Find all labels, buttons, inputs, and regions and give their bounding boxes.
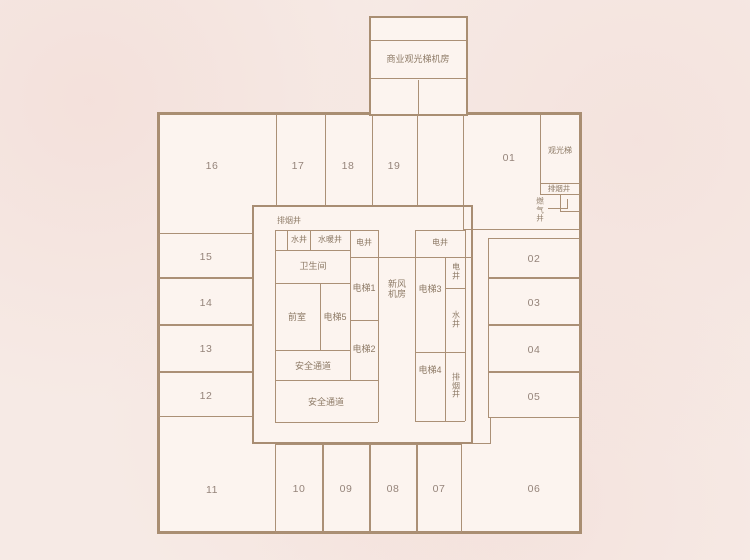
water-shaft-vertical-label: 水井 bbox=[451, 312, 461, 329]
room-09-label: 09 bbox=[340, 483, 353, 495]
floor-plan: 商业观光梯机房 观光梯 排烟井 燃气井 bbox=[0, 0, 750, 560]
wall-segment bbox=[371, 40, 466, 41]
wall-segment bbox=[490, 418, 491, 444]
room-13-label: 13 bbox=[200, 343, 213, 355]
room-06-label: 06 bbox=[528, 483, 541, 495]
electric-shaft-right-top-label: 电井 bbox=[432, 238, 448, 248]
machine-room-label: 商业观光梯机房 bbox=[386, 54, 449, 64]
room-17-label: 17 bbox=[292, 160, 305, 172]
smoke-exhaust-shaft-label: 排烟井 bbox=[548, 184, 571, 194]
safety-passage-upper-label: 安全通道 bbox=[295, 361, 331, 371]
room-16-label: 16 bbox=[206, 160, 219, 172]
wall-segment bbox=[325, 114, 326, 206]
room-04-label: 04 bbox=[528, 344, 541, 356]
room-03-label: 03 bbox=[528, 297, 541, 309]
elevator-3-label: 电梯3 bbox=[418, 284, 441, 294]
elevator-4-label: 电梯4 bbox=[418, 365, 441, 375]
wall-segment bbox=[465, 230, 466, 421]
wall-segment bbox=[320, 283, 321, 350]
wall-segment bbox=[350, 257, 472, 258]
wall-segment bbox=[418, 80, 419, 114]
room-02-label: 02 bbox=[528, 253, 541, 265]
wall-segment bbox=[276, 114, 277, 206]
room-18-label: 18 bbox=[342, 160, 355, 172]
room-01-label: 01 bbox=[503, 152, 516, 164]
wall-segment bbox=[378, 230, 379, 422]
front-room-label: 前室 bbox=[288, 312, 306, 322]
wall-segment bbox=[445, 288, 465, 289]
room-12-label: 12 bbox=[200, 390, 213, 402]
wall-segment bbox=[463, 229, 581, 230]
gas-shaft-leader-line bbox=[548, 208, 568, 209]
wall-segment bbox=[350, 320, 378, 321]
wall-segment bbox=[560, 211, 581, 212]
wall-segment bbox=[415, 421, 465, 422]
electric-shaft-vertical-label: 电井 bbox=[451, 264, 461, 281]
room-10-label: 10 bbox=[293, 483, 306, 495]
wall-segment bbox=[287, 230, 288, 250]
wall-segment bbox=[415, 352, 465, 353]
wall-segment bbox=[372, 114, 373, 206]
wall-segment bbox=[275, 230, 276, 422]
room-19-label: 19 bbox=[388, 160, 401, 172]
gas-shaft-label: 燃气井 bbox=[535, 197, 545, 223]
electric-shaft-top-label: 电井 bbox=[356, 238, 372, 248]
room-08-label: 08 bbox=[387, 483, 400, 495]
room-07-label: 07 bbox=[433, 483, 446, 495]
wall-segment bbox=[275, 422, 378, 423]
water-shaft-label: 水井 bbox=[291, 235, 307, 245]
sightseeing-elevator-label: 观光梯 bbox=[548, 146, 572, 156]
toilet-label: 卫生间 bbox=[299, 261, 326, 271]
safety-passage-lower-label: 安全通道 bbox=[308, 397, 344, 407]
wall-segment bbox=[415, 230, 416, 421]
room-11-label: 11 bbox=[206, 484, 218, 496]
gas-shaft-leader-line bbox=[567, 199, 568, 209]
elevator-1-label: 电梯1 bbox=[352, 283, 375, 293]
smoke-exhaust-vertical-label: 排烟井 bbox=[451, 373, 461, 399]
wall-segment bbox=[275, 350, 350, 351]
elevator-2-label: 电梯2 bbox=[352, 344, 375, 354]
plumbing-shaft-label: 水暖井 bbox=[318, 235, 342, 245]
wall-segment bbox=[275, 230, 378, 231]
core-smoke-exhaust-label: 排烟井 bbox=[277, 216, 301, 226]
wall-segment bbox=[310, 230, 311, 250]
elevator-5-label: 电梯5 bbox=[323, 312, 346, 322]
room-15-label: 15 bbox=[200, 251, 213, 263]
wall-segment bbox=[371, 78, 466, 79]
wall-segment bbox=[275, 283, 350, 284]
wall-segment bbox=[445, 257, 446, 421]
wall-segment bbox=[275, 380, 378, 381]
room-05-label: 05 bbox=[528, 391, 541, 403]
wall-segment bbox=[417, 114, 418, 206]
wall-segment bbox=[415, 230, 465, 231]
fresh-air-room-label: 新风机房 bbox=[386, 279, 408, 299]
wall-segment bbox=[275, 250, 350, 251]
wall-segment bbox=[350, 230, 351, 380]
room-14-label: 14 bbox=[200, 297, 213, 309]
